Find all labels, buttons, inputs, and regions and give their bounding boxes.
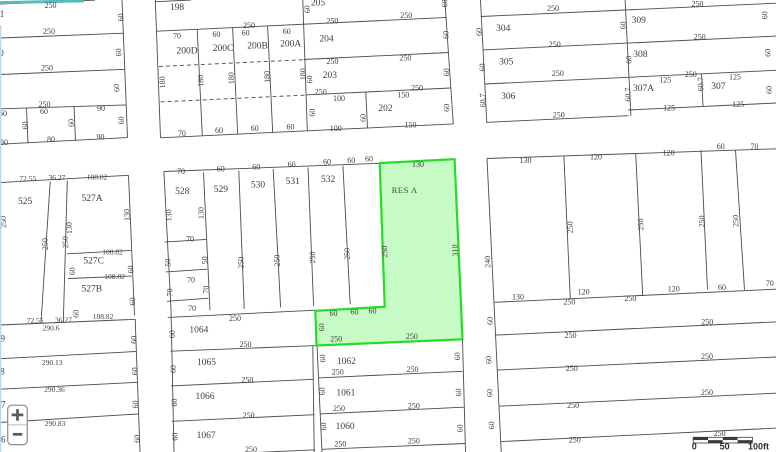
svg-text:60: 60 <box>318 387 327 395</box>
svg-text:60: 60 <box>215 126 223 135</box>
svg-text:180: 180 <box>262 71 271 83</box>
svg-text:150: 150 <box>397 91 409 100</box>
svg-text:250: 250 <box>61 236 70 248</box>
svg-text:60: 60 <box>442 104 451 112</box>
svg-text:250: 250 <box>549 40 561 49</box>
svg-text:60: 60 <box>760 11 769 19</box>
svg-text:290.83: 290.83 <box>45 419 66 428</box>
svg-text:527B: 527B <box>82 285 103 295</box>
svg-text:60: 60 <box>71 310 80 318</box>
svg-text:250: 250 <box>308 251 317 263</box>
svg-text:307A: 307A <box>633 84 654 94</box>
svg-text:60: 60 <box>116 13 125 21</box>
svg-text:120: 120 <box>578 287 590 296</box>
svg-text:198: 198 <box>170 3 185 13</box>
svg-text:305: 305 <box>499 58 514 68</box>
svg-text:60: 60 <box>624 56 633 64</box>
svg-text:250: 250 <box>731 215 740 227</box>
svg-text:250: 250 <box>566 364 578 373</box>
svg-text:60: 60 <box>453 352 462 360</box>
svg-text:250: 250 <box>240 340 252 349</box>
svg-text:100ft: 100ft <box>748 441 769 451</box>
svg-text:250: 250 <box>40 238 49 250</box>
svg-text:60: 60 <box>168 330 177 338</box>
svg-text:60: 60 <box>305 75 314 83</box>
svg-text:1061: 1061 <box>336 389 355 399</box>
svg-text:307: 307 <box>711 82 726 92</box>
svg-text:250: 250 <box>694 32 706 41</box>
svg-text:250: 250 <box>326 57 338 66</box>
svg-text:60: 60 <box>440 0 449 8</box>
svg-text:250: 250 <box>334 440 346 449</box>
svg-text:60: 60 <box>40 107 48 116</box>
svg-text:70: 70 <box>766 279 774 288</box>
svg-text:60: 60 <box>21 121 30 129</box>
svg-text:203: 203 <box>323 71 338 81</box>
svg-text:531: 531 <box>286 177 301 187</box>
svg-text:290.13: 290.13 <box>42 358 63 367</box>
svg-text:60: 60 <box>317 323 326 331</box>
svg-text:60: 60 <box>68 267 77 275</box>
svg-text:60: 60 <box>319 422 328 430</box>
svg-text:529: 529 <box>214 185 229 195</box>
svg-text:70: 70 <box>751 142 759 151</box>
svg-text:250: 250 <box>563 298 575 307</box>
svg-text:130: 130 <box>520 156 532 165</box>
svg-text:250: 250 <box>400 11 412 20</box>
svg-text:60: 60 <box>487 421 496 429</box>
svg-text:120: 120 <box>590 153 602 162</box>
svg-text:108.82: 108.82 <box>102 248 123 257</box>
svg-text:60: 60 <box>117 116 126 124</box>
svg-text:200C: 200C <box>213 44 234 54</box>
svg-text:60: 60 <box>217 164 225 173</box>
svg-text:120: 120 <box>668 285 680 294</box>
svg-text:72.55: 72.55 <box>27 316 44 325</box>
svg-text:60: 60 <box>441 31 450 39</box>
svg-text:125: 125 <box>732 100 744 109</box>
svg-text:70: 70 <box>188 304 196 313</box>
svg-text:60: 60 <box>283 27 291 36</box>
svg-text:60: 60 <box>67 119 76 127</box>
svg-text:290.36: 290.36 <box>44 385 65 394</box>
svg-text:60: 60 <box>169 365 178 373</box>
svg-text:70: 70 <box>178 129 186 138</box>
svg-text:250: 250 <box>408 436 420 445</box>
svg-text:250: 250 <box>41 64 53 73</box>
svg-text:60.7: 60.7 <box>623 87 632 101</box>
svg-text:250: 250 <box>330 335 342 344</box>
svg-text:180: 180 <box>196 75 205 87</box>
svg-text:60: 60 <box>112 84 121 92</box>
svg-text:250: 250 <box>43 27 55 36</box>
svg-text:250: 250 <box>565 331 577 340</box>
svg-text:200B: 200B <box>247 41 268 51</box>
svg-text:108.82: 108.82 <box>93 312 114 321</box>
svg-text:60: 60 <box>130 367 139 375</box>
svg-text:60: 60 <box>455 424 464 432</box>
svg-text:1060: 1060 <box>336 422 355 432</box>
svg-text:250: 250 <box>315 88 327 97</box>
svg-text:100: 100 <box>333 94 345 103</box>
svg-text:130: 130 <box>122 209 131 221</box>
svg-text:50: 50 <box>720 441 730 451</box>
svg-text:60: 60 <box>330 309 338 318</box>
svg-text:306: 306 <box>501 92 516 102</box>
svg-text:60: 60 <box>131 400 140 408</box>
svg-text:60: 60 <box>764 86 773 94</box>
svg-text:70: 70 <box>187 276 195 285</box>
svg-text:130: 130 <box>512 293 524 302</box>
svg-text:60: 60 <box>485 317 494 325</box>
svg-text:70: 70 <box>177 167 185 176</box>
svg-text:60: 60 <box>358 114 367 122</box>
svg-text:60.7: 60.7 <box>696 77 705 91</box>
svg-text:250: 250 <box>624 294 636 303</box>
svg-text:205: 205 <box>311 0 326 9</box>
svg-text:90: 90 <box>97 104 105 113</box>
svg-text:60: 60 <box>347 156 355 165</box>
svg-text:130: 130 <box>65 222 74 234</box>
svg-text:50: 50 <box>200 256 209 264</box>
svg-text:250: 250 <box>406 332 418 341</box>
svg-text:525: 525 <box>18 197 33 207</box>
svg-text:250: 250 <box>567 401 579 410</box>
svg-text:290.6: 290.6 <box>43 323 60 332</box>
svg-text:60: 60 <box>323 158 331 167</box>
svg-text:60: 60 <box>484 356 493 364</box>
svg-text:308: 308 <box>633 50 648 60</box>
svg-text:60: 60 <box>454 388 463 396</box>
svg-text:250: 250 <box>241 375 253 384</box>
svg-text:60: 60 <box>242 28 250 37</box>
svg-text:250: 250 <box>411 83 423 92</box>
svg-text:130: 130 <box>196 207 205 219</box>
svg-text:250: 250 <box>342 248 351 260</box>
svg-text:60: 60 <box>442 68 451 76</box>
svg-text:250: 250 <box>272 254 281 266</box>
svg-text:130: 130 <box>164 209 173 221</box>
svg-text:204: 204 <box>319 34 334 44</box>
svg-text:70: 70 <box>165 288 174 296</box>
svg-text:202: 202 <box>378 104 393 114</box>
svg-text:250: 250 <box>553 111 565 120</box>
svg-text:100: 100 <box>330 124 342 133</box>
svg-text:108.82: 108.82 <box>87 172 108 181</box>
svg-text:250: 250 <box>701 317 713 326</box>
svg-text:1064: 1064 <box>189 326 208 336</box>
svg-text:180: 180 <box>226 72 235 84</box>
svg-text:60: 60 <box>369 307 377 316</box>
svg-text:527A: 527A <box>81 194 102 204</box>
svg-text:250: 250 <box>326 17 338 26</box>
svg-text:240: 240 <box>483 256 492 268</box>
svg-text:60: 60 <box>717 142 725 151</box>
svg-text:304: 304 <box>496 24 511 34</box>
svg-text:250: 250 <box>45 1 57 10</box>
svg-text:RES A: RES A <box>392 185 418 195</box>
svg-text:60.7: 60.7 <box>478 93 487 107</box>
svg-text:0: 0 <box>692 441 697 451</box>
svg-text:250: 250 <box>408 401 420 410</box>
svg-text:60: 60 <box>303 5 312 13</box>
svg-text:1067: 1067 <box>197 431 216 441</box>
svg-text:60: 60 <box>287 122 295 131</box>
svg-text:70: 70 <box>173 31 181 40</box>
svg-text:310: 310 <box>450 244 459 256</box>
svg-text:60: 60 <box>478 63 487 71</box>
svg-text:90: 90 <box>97 133 105 142</box>
svg-text:200D: 200D <box>176 47 197 57</box>
svg-text:250: 250 <box>692 0 704 9</box>
svg-text:108.82: 108.82 <box>104 272 125 281</box>
svg-text:72.55: 72.55 <box>19 174 36 183</box>
svg-text:527C: 527C <box>83 257 104 267</box>
svg-text:50: 50 <box>163 258 172 266</box>
svg-text:120: 120 <box>663 149 675 158</box>
svg-text:80: 80 <box>47 135 55 144</box>
svg-text:60: 60 <box>212 30 220 39</box>
svg-text:180: 180 <box>158 76 167 88</box>
svg-text:250: 250 <box>701 388 713 397</box>
svg-text:250: 250 <box>552 69 564 78</box>
svg-text:60: 60 <box>132 435 141 443</box>
svg-text:250: 250 <box>636 218 645 230</box>
svg-text:60: 60 <box>170 433 179 441</box>
svg-text:250: 250 <box>380 246 389 258</box>
svg-text:1066: 1066 <box>196 392 215 402</box>
svg-text:250: 250 <box>569 435 581 444</box>
svg-text:200A: 200A <box>280 39 301 49</box>
svg-text:150: 150 <box>405 121 417 130</box>
svg-text:250: 250 <box>333 404 345 413</box>
svg-text:60: 60 <box>251 124 259 133</box>
svg-text:530: 530 <box>251 181 266 191</box>
svg-text:1: 1 <box>0 9 4 19</box>
svg-text:60: 60 <box>618 21 627 29</box>
svg-text:250: 250 <box>399 54 411 63</box>
svg-text:60: 60 <box>474 28 483 36</box>
svg-text:130: 130 <box>412 160 424 169</box>
svg-text:250: 250 <box>547 4 559 13</box>
svg-text:60: 60 <box>114 48 123 56</box>
svg-text:60: 60 <box>128 297 137 305</box>
svg-text:60: 60 <box>170 398 179 406</box>
svg-text:60: 60 <box>318 354 327 362</box>
svg-text:125: 125 <box>663 104 675 113</box>
svg-text:309: 309 <box>632 16 647 26</box>
svg-text:60: 60 <box>365 155 373 164</box>
svg-text:532: 532 <box>321 175 336 185</box>
svg-text:125: 125 <box>729 73 741 82</box>
svg-text:250: 250 <box>701 352 713 361</box>
svg-text:250: 250 <box>714 429 726 438</box>
svg-text:250: 250 <box>332 368 344 377</box>
svg-text:60: 60 <box>763 49 772 57</box>
svg-text:250: 250 <box>236 257 245 269</box>
svg-text:250: 250 <box>243 411 255 420</box>
svg-text:36.27: 36.27 <box>48 173 65 182</box>
svg-text:60: 60 <box>485 389 494 397</box>
svg-text:250: 250 <box>407 365 419 374</box>
svg-text:60: 60 <box>718 283 726 292</box>
svg-text:250: 250 <box>245 445 257 452</box>
svg-text:250: 250 <box>229 314 241 323</box>
svg-text:1062: 1062 <box>337 357 356 367</box>
svg-text:70: 70 <box>201 286 210 294</box>
svg-text:250: 250 <box>697 215 706 227</box>
svg-text:60: 60 <box>129 336 138 344</box>
svg-text:528: 528 <box>175 187 190 197</box>
svg-text:250: 250 <box>565 221 574 233</box>
svg-text:70: 70 <box>186 234 194 243</box>
svg-text:60: 60 <box>126 265 135 273</box>
svg-text:60: 60 <box>308 109 317 117</box>
svg-text:125: 125 <box>659 76 671 85</box>
svg-text:60: 60 <box>288 160 296 169</box>
svg-text:60: 60 <box>351 308 359 317</box>
svg-text:60: 60 <box>252 163 260 172</box>
svg-text:1065: 1065 <box>197 358 216 368</box>
